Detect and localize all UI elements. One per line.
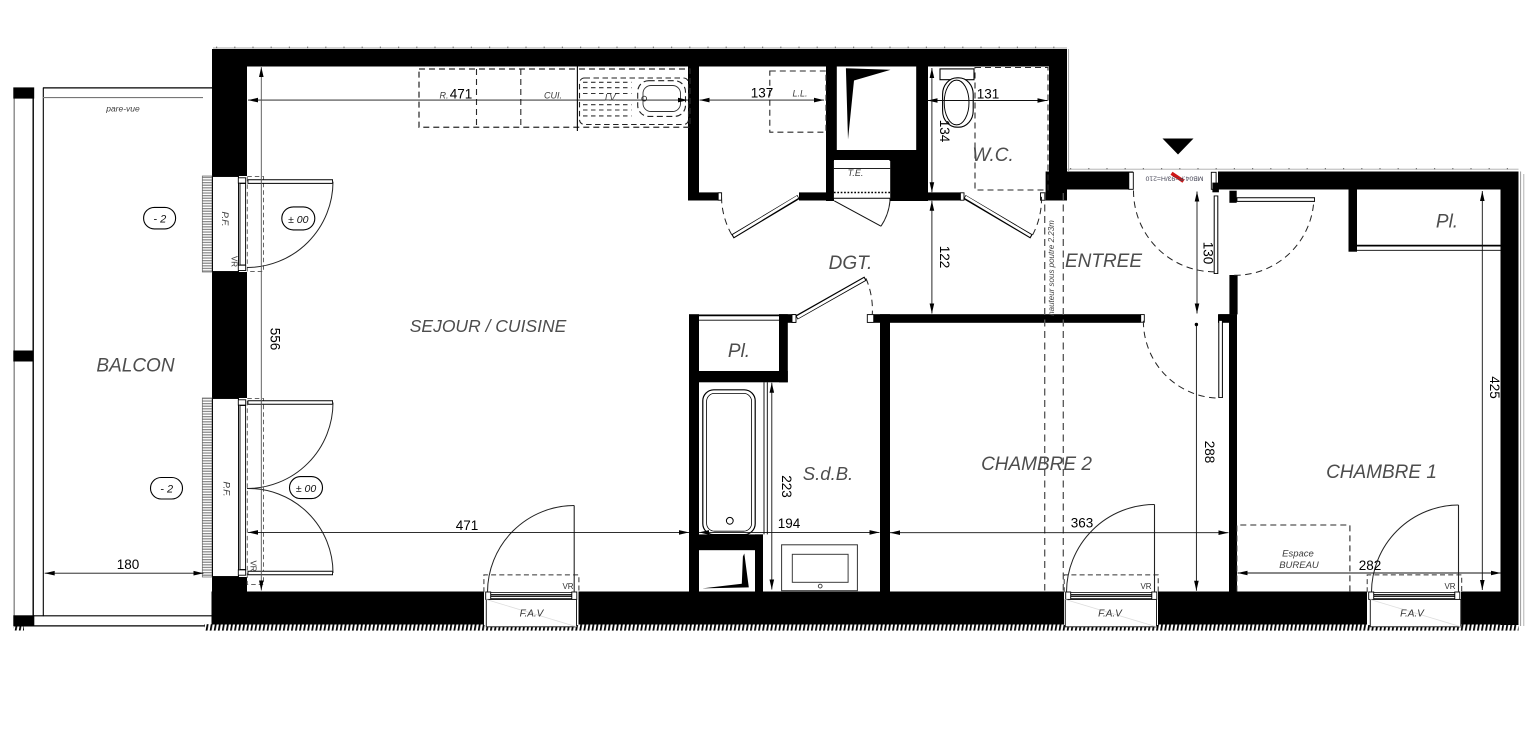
svg-text:SEJOUR / CUISINE: SEJOUR / CUISINE xyxy=(410,316,567,336)
svg-text:pare-vue: pare-vue xyxy=(105,104,140,114)
svg-text:CUI.: CUI. xyxy=(544,91,562,101)
svg-text:- 2: - 2 xyxy=(153,214,166,226)
svg-text:LV.: LV. xyxy=(605,93,617,103)
svg-text:T.E.: T.E. xyxy=(848,168,864,178)
svg-text:P.F.: P.F. xyxy=(221,482,232,497)
svg-text:VR: VR xyxy=(1444,582,1455,591)
svg-text:W.C.: W.C. xyxy=(972,145,1014,166)
svg-text:BUREAU: BUREAU xyxy=(1279,560,1319,571)
svg-text:R.: R. xyxy=(440,91,449,101)
svg-text:F.A.V: F.A.V xyxy=(1098,609,1123,620)
svg-text:- 2: - 2 xyxy=(160,484,173,496)
svg-text:131: 131 xyxy=(977,87,1000,102)
svg-text:471: 471 xyxy=(450,87,473,102)
svg-text:L.L.: L.L. xyxy=(792,89,807,99)
svg-text:CHAMBRE 1: CHAMBRE 1 xyxy=(1326,462,1437,483)
svg-text:VR: VR xyxy=(230,256,239,267)
svg-text:± 00: ± 00 xyxy=(296,483,317,495)
svg-text:180: 180 xyxy=(117,557,140,572)
svg-text:223: 223 xyxy=(779,475,794,498)
svg-text:556: 556 xyxy=(267,328,282,351)
svg-text:Pl.: Pl. xyxy=(1436,212,1458,233)
svg-text:134: 134 xyxy=(937,120,952,143)
svg-text:± 00: ± 00 xyxy=(288,214,309,226)
svg-text:P.F.: P.F. xyxy=(219,212,230,227)
svg-text:VR: VR xyxy=(1140,582,1151,591)
svg-text:363: 363 xyxy=(1071,516,1094,531)
svg-text:S.d.B.: S.d.B. xyxy=(803,463,853,484)
svg-text:VR: VR xyxy=(562,582,573,591)
svg-text:288: 288 xyxy=(1202,441,1217,464)
svg-text:F.A.V: F.A.V xyxy=(1400,609,1425,620)
svg-text:Espace: Espace xyxy=(1282,549,1314,560)
svg-text:Pl.: Pl. xyxy=(728,341,750,362)
svg-text:ENTREE: ENTREE xyxy=(1065,251,1142,272)
svg-text:471: 471 xyxy=(456,518,479,533)
svg-text:194: 194 xyxy=(778,516,801,531)
svg-text:DGT.: DGT. xyxy=(829,253,873,274)
svg-text:F.A.V: F.A.V xyxy=(520,609,545,620)
svg-text:282: 282 xyxy=(1359,558,1382,573)
svg-text:425: 425 xyxy=(1487,376,1502,399)
svg-text:VR: VR xyxy=(249,560,258,571)
svg-text:130: 130 xyxy=(1201,242,1216,265)
svg-text:hauteur sous poutre 2.23m: hauteur sous poutre 2.23m xyxy=(1047,220,1056,316)
svg-text:CHAMBRE 2: CHAMBRE 2 xyxy=(981,454,1092,475)
svg-text:BALCON: BALCON xyxy=(96,356,174,377)
svg-text:MB04:P=93/H=210: MB04:P=93/H=210 xyxy=(1145,175,1203,182)
svg-text:137: 137 xyxy=(751,86,774,101)
svg-text:122: 122 xyxy=(937,246,952,269)
